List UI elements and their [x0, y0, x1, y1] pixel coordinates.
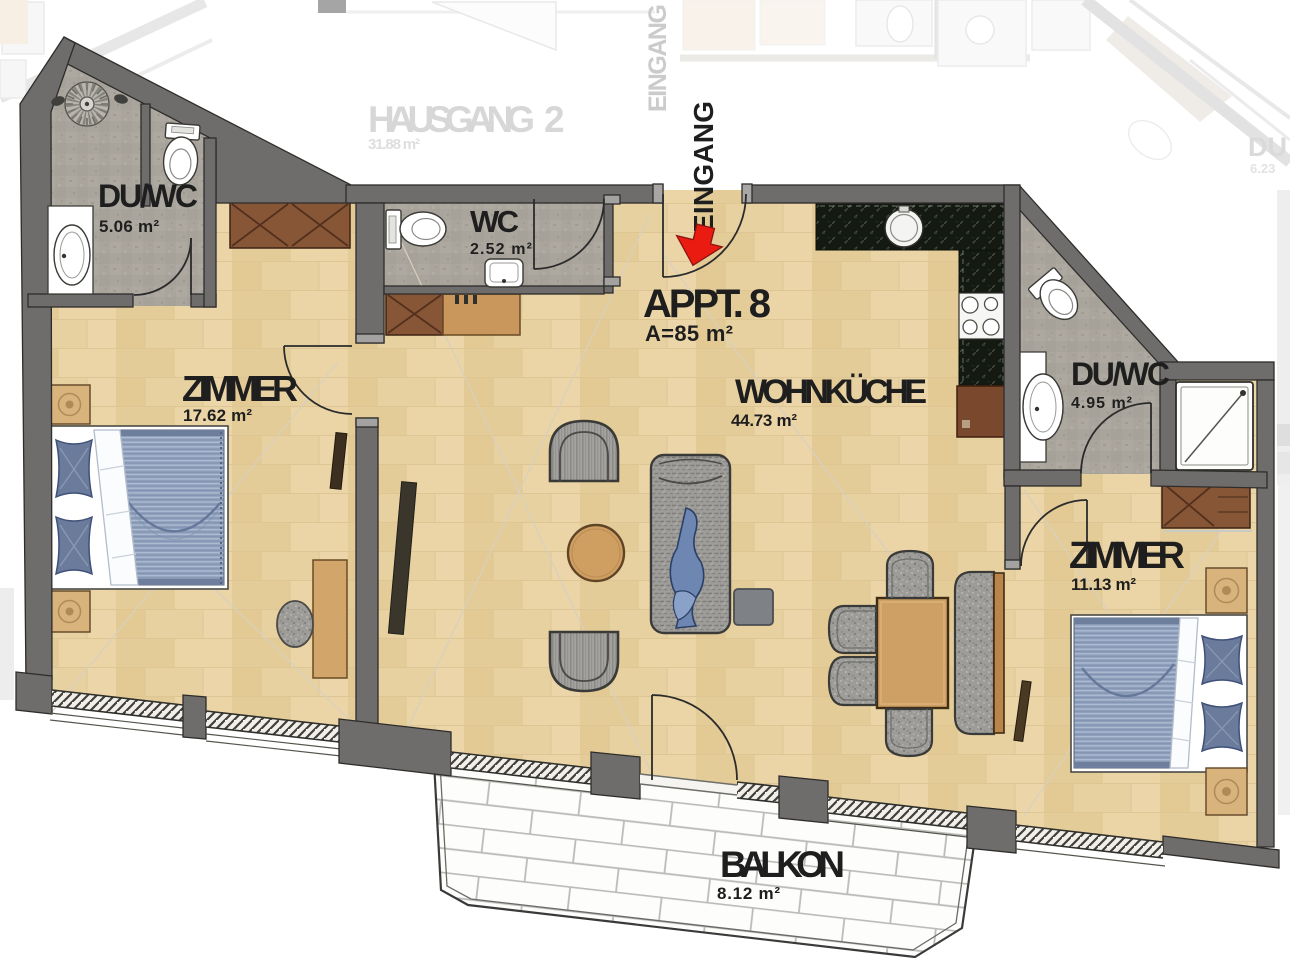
svg-text:31.88 m²: 31.88 m²	[368, 136, 420, 153]
svg-text:8.12 m²: 8.12 m²	[717, 884, 780, 903]
svg-text:APPT. 8: APPT. 8	[643, 282, 771, 326]
svg-text:ZIMMER: ZIMMER	[1069, 535, 1185, 577]
svg-text:DU/WC: DU/WC	[98, 178, 198, 214]
svg-text:2: 2	[544, 99, 565, 140]
svg-text:WOHNKÜCHE: WOHNKÜCHE	[735, 373, 927, 411]
svg-text:DU/WC: DU/WC	[1071, 356, 1170, 392]
svg-text:6.23: 6.23	[1250, 161, 1275, 176]
svg-text:HAUSGANG: HAUSGANG	[368, 99, 535, 140]
svg-text:ZIMMER: ZIMMER	[182, 368, 298, 409]
svg-text:4.95 m²: 4.95 m²	[1071, 395, 1132, 412]
svg-text:2.52 m²: 2.52 m²	[470, 241, 532, 258]
svg-text:5.06 m²: 5.06 m²	[99, 217, 159, 236]
svg-text:44.73 m²: 44.73 m²	[731, 411, 797, 430]
svg-text:A=85 m²: A=85 m²	[645, 321, 733, 346]
svg-text:EINGANG: EINGANG	[644, 4, 672, 112]
svg-text:17.62 m²: 17.62 m²	[183, 406, 252, 425]
svg-text:DU: DU	[1248, 132, 1287, 162]
svg-text:WC: WC	[470, 204, 519, 239]
svg-text:EINGANG: EINGANG	[688, 101, 719, 233]
svg-text:BALKON: BALKON	[720, 844, 845, 885]
svg-text:11.13 m²: 11.13 m²	[1071, 575, 1136, 594]
